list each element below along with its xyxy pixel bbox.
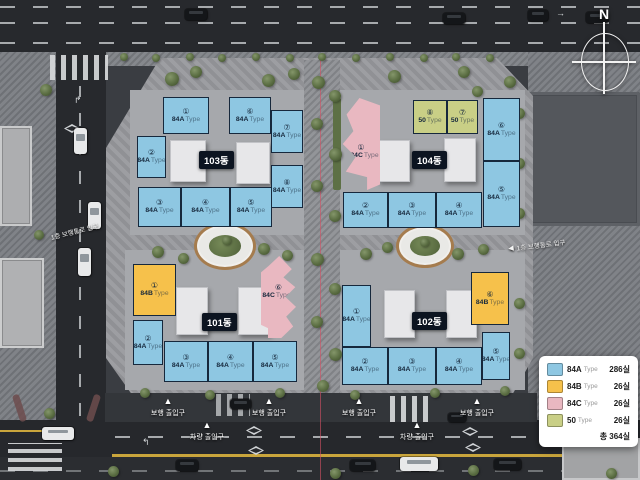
tree (430, 388, 440, 398)
unit-102동-⑥-84B: ⑥84BType (471, 272, 509, 325)
car (494, 459, 521, 470)
tree (186, 53, 194, 61)
unit-101동-⑤-84A: ⑤84AType (253, 341, 297, 382)
tree (452, 53, 460, 61)
vehicle-entrance-label: 차량 출입구 (190, 432, 224, 442)
unit-number: ⑤ (247, 199, 254, 207)
building-label-101: 101동 (202, 313, 237, 331)
tree (329, 283, 341, 295)
tree (252, 53, 260, 61)
unit-type-label: 50Type (418, 118, 441, 125)
unit-102동-④-84A: ④84AType (436, 347, 482, 385)
tree (152, 246, 164, 258)
unit-number: ① (182, 108, 189, 116)
car (350, 460, 375, 471)
tree (386, 53, 394, 61)
unit-type-label: 84AType (351, 211, 379, 218)
unit-number: ② (361, 358, 368, 366)
tree (329, 348, 342, 361)
center-yellow-line (112, 454, 640, 457)
unit-101동-①-84B: ①84BType (133, 264, 176, 316)
unit-number: ⑤ (492, 348, 499, 356)
tree (165, 72, 179, 86)
tree (452, 248, 464, 260)
unit-type-label: 84AType (487, 131, 515, 138)
neighbor-building (0, 126, 32, 226)
unit-type-label: 84AType (236, 117, 264, 124)
lane-marking (0, 42, 640, 44)
unit-number: ① (357, 144, 364, 152)
turn-arrow-icon: ↰ (142, 438, 150, 447)
car (42, 427, 74, 440)
building-label-102: 102동 (412, 312, 447, 330)
unit-number: ① (353, 308, 360, 316)
unit-number: ⑥ (246, 108, 253, 116)
unit-103동-④-84A: ④84AType (181, 187, 230, 227)
tree (478, 244, 489, 255)
entrance-triangle-icon: ▲ (265, 397, 274, 406)
hedge (333, 98, 341, 190)
compass-north-label: N (599, 6, 609, 22)
unit-101동-④-84A: ④84AType (208, 341, 253, 382)
vehicle-entrance-label: 차량 출입구 (400, 432, 434, 442)
tree (458, 66, 470, 78)
unit-number: ⑥ (498, 122, 505, 130)
tree (500, 386, 510, 396)
tree (222, 236, 231, 245)
unit-number: ⑤ (271, 354, 278, 362)
unit-number: ③ (156, 199, 163, 207)
tree (40, 84, 52, 96)
tree (329, 148, 342, 161)
unit-type-legend: 84AType286실84BType26실84CType26실50Type26실… (539, 356, 638, 447)
legend-swatch-84B (547, 380, 563, 393)
tree (318, 53, 326, 61)
tree (152, 54, 160, 62)
unit-number: ③ (182, 354, 189, 362)
unit-type-label: 84AType (273, 188, 301, 195)
neighbor-building (524, 92, 640, 226)
tree (120, 53, 128, 61)
unit-103동-①-84A: ①84AType (163, 97, 209, 134)
tree (317, 380, 329, 392)
tree (352, 54, 360, 62)
unit-type-label: 84AType (487, 195, 515, 202)
unit-number: ③ (408, 358, 415, 366)
tree (311, 316, 323, 328)
unit-type-label: 84AType (273, 133, 301, 140)
entrance-triangle-icon: ▲ (203, 421, 212, 430)
unit-number: ② (362, 202, 369, 210)
legend-swatch-50 (547, 414, 563, 427)
tree (382, 242, 393, 253)
crosswalk (390, 396, 434, 422)
pedestrian-entrance-label: 보행 출입구 (252, 408, 286, 418)
tree (420, 238, 429, 247)
unit-number: ② (148, 149, 155, 157)
unit-102동-⑤-84A: ⑤84AType (482, 332, 510, 380)
unit-type-label: 84AType (445, 367, 473, 374)
tree (606, 468, 617, 479)
tree (514, 348, 525, 359)
unit-type-label: 84AType (137, 158, 165, 165)
turn-arrow-icon: ↱ (74, 96, 82, 105)
unit-103동-②-84A: ②84AType (137, 136, 166, 178)
building-label-103: 103동 (199, 151, 234, 169)
car (230, 399, 251, 409)
unit-103동-⑧-84A: ⑧84AType (271, 165, 303, 208)
tree (44, 408, 55, 419)
unit-number: ④ (202, 199, 209, 207)
tree (472, 86, 483, 97)
unit-number: ⑤ (498, 186, 505, 194)
tree (205, 390, 215, 400)
crosswalk (8, 443, 62, 471)
tree (140, 388, 150, 398)
tree (34, 230, 44, 240)
unit-type-label: 84AType (216, 363, 244, 370)
pedestrian-entrance-label: 보행 출입구 (342, 408, 376, 418)
tree (514, 298, 525, 309)
site-plan: → ↱ ↰ 101동 102동 103동 104동 ①84BTy (0, 0, 640, 480)
garden-circle (194, 222, 256, 270)
tree (311, 180, 323, 192)
unit-number: ⑧ (283, 179, 290, 187)
unit-type-label: 84AType (172, 117, 200, 124)
tree (329, 90, 341, 102)
tree (486, 54, 494, 62)
unit-type-label: 84AType (445, 211, 473, 218)
tree (329, 210, 341, 222)
unit-102동-②-84A: ②84AType (342, 347, 388, 385)
unit-type-label: 84AType (398, 211, 426, 218)
tree (286, 54, 294, 62)
unit-number: ③ (408, 202, 415, 210)
unit-number: ⑥ (275, 284, 282, 292)
lane-marking (0, 22, 640, 24)
building-mass (384, 290, 415, 338)
tree (288, 68, 300, 80)
car (528, 10, 548, 21)
tree (468, 465, 479, 476)
building-mass (378, 140, 410, 182)
unit-type-label: 84AType (191, 208, 219, 215)
unit-103동-⑦-84A: ⑦84AType (271, 110, 303, 153)
unit-101동-③-84A: ③84AType (164, 341, 208, 382)
unit-104동-②-84A: ②84AType (343, 192, 388, 228)
tree (190, 66, 202, 78)
unit-103동-⑤-84A: ⑤84AType (230, 187, 272, 227)
unit-103동-③-84A: ③84AType (138, 187, 181, 227)
unit-type-label: 84AType (261, 363, 289, 370)
legend-total: 총 364실 (547, 431, 630, 442)
unit-type-label: 84BType (140, 291, 168, 298)
tree (312, 76, 325, 89)
crosswalk (50, 55, 108, 80)
neighbor-building (0, 258, 44, 348)
car (185, 9, 207, 20)
unit-type-label: 50Type (451, 118, 474, 125)
car (78, 248, 91, 276)
tree (388, 70, 401, 83)
pedestrian-entrance-label: 보행 출입구 (460, 408, 494, 418)
unit-104동-③-84A: ③84AType (388, 192, 436, 228)
unit-104동-⑤-84A: ⑤84AType (483, 161, 520, 227)
tree (282, 250, 293, 261)
lane-marking (0, 6, 640, 8)
tree (330, 468, 341, 479)
unit-104동-⑧-50: ⑧50Type (413, 100, 447, 134)
tree (178, 253, 189, 264)
tree (420, 54, 428, 62)
unit-number: ④ (455, 358, 462, 366)
unit-number: ⑥ (486, 291, 493, 299)
unit-102동-①-84A: ①84AType (342, 285, 371, 347)
car (443, 13, 465, 24)
unit-type-label: 84AType (482, 357, 510, 364)
unit-type-label: 84BType (476, 300, 504, 307)
entrance-triangle-icon: ▲ (473, 397, 482, 406)
tree (258, 243, 270, 255)
legend-row-84A: 84AType286실 (547, 363, 630, 376)
yellow-line (0, 430, 46, 432)
unit-type-label: 84AType (351, 367, 379, 374)
unit-type-label: 84AType (145, 208, 173, 215)
car (400, 457, 438, 471)
entrance-triangle-icon: ▲ (355, 397, 364, 406)
unit-type-label: 84AType (237, 208, 265, 215)
legend-swatch-84C (547, 397, 563, 410)
entrance-triangle-icon: ▲ (413, 421, 422, 430)
unit-104동-⑥-84A: ⑥84AType (483, 98, 520, 161)
legend-row-50: 50Type26실 (547, 414, 630, 427)
tree (218, 54, 226, 62)
unit-101동-②-84A: ②84AType (133, 320, 163, 365)
car (74, 128, 87, 154)
pedestrian-entrance-label: 보행 출입구 (151, 408, 185, 418)
unit-104동-④-84A: ④84AType (436, 192, 482, 228)
unit-number: ④ (227, 354, 234, 362)
tree (275, 388, 285, 398)
unit-number: ① (151, 282, 158, 290)
unit-102동-③-84A: ③84AType (388, 347, 436, 385)
legend-swatch-84A (547, 363, 563, 376)
legend-row-84C: 84CType26실 (547, 397, 630, 410)
tree (311, 253, 324, 266)
entrance-triangle-icon: ▲ (164, 397, 173, 406)
unit-type-label: 84AType (172, 363, 200, 370)
lane-arrow-icon: → (556, 9, 565, 18)
building-label-104: 104동 (412, 151, 447, 169)
unit-number: ⑦ (459, 109, 466, 117)
tree (360, 248, 372, 260)
building-mass (444, 138, 476, 182)
unit-number: ⑧ (426, 109, 433, 117)
car (176, 460, 198, 471)
tree (311, 118, 323, 130)
unit-number: ④ (455, 202, 462, 210)
unit-103동-⑥-84A: ⑥84AType (229, 97, 271, 134)
unit-type-label: 84AType (398, 367, 426, 374)
arrow-left-icon: ◀ (508, 244, 514, 253)
legend-row-84B: 84BType26실 (547, 380, 630, 393)
unit-number: ⑦ (283, 124, 290, 132)
building-mass (236, 142, 270, 184)
north-compass-icon: N (572, 6, 636, 98)
unit-104동-⑦-50: ⑦50Type (447, 100, 478, 134)
tree (108, 466, 119, 477)
unit-type-label: 84AType (342, 317, 370, 324)
unit-type-label: 84AType (134, 344, 162, 351)
tree (504, 76, 516, 88)
tree (262, 74, 275, 87)
unit-number: ② (144, 335, 151, 343)
